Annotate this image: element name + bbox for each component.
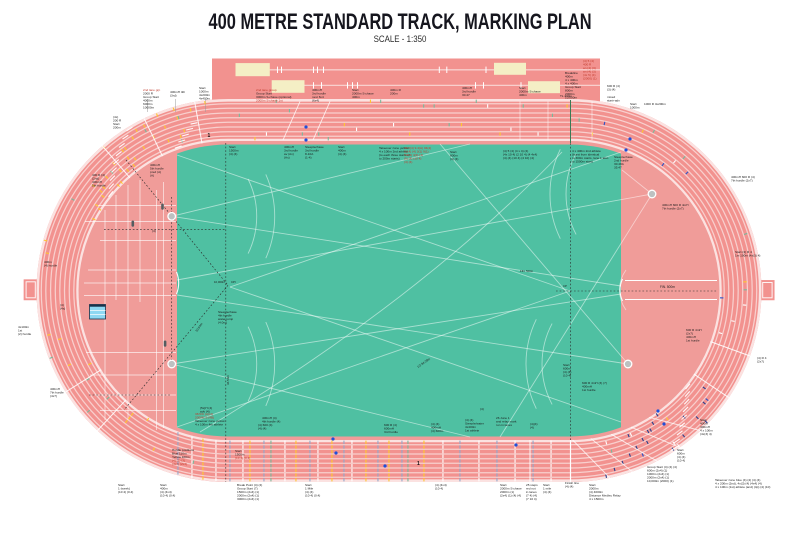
svg-text:1: 1 xyxy=(417,461,420,467)
svg-text:1000 R 4x200m: 1000 R 4x200m xyxy=(644,102,666,106)
svg-text:36.50m: 36.50m xyxy=(226,374,230,385)
svg-text:FIN. 500m: FIN. 500m xyxy=(660,285,675,289)
svg-text:400mH 600 R (4)7th hurdle (2: 400mH 600 R (4)7th hurdle (2x7) xyxy=(731,175,755,183)
svg-text:CPI: CPI xyxy=(231,280,236,284)
svg-text:CP: CP xyxy=(563,284,567,288)
svg-text:Break Point (4) (4)Group Star: Break Point (4) (4)Group Start (7)1500m … xyxy=(237,483,262,501)
svg-text:(4): (4) xyxy=(152,229,156,233)
svg-text:10,000m: 10,000m xyxy=(214,280,226,284)
svg-text:1: 1 xyxy=(208,133,211,139)
svg-text:(4): (4) xyxy=(480,407,484,411)
svg-text:25 stepsred notin lanes(7 4) (: 25 stepsred notin lanes(7 4) (4)(7 10 4) xyxy=(526,483,538,501)
svg-text:FIN. 500m: FIN. 500m xyxy=(520,269,534,273)
